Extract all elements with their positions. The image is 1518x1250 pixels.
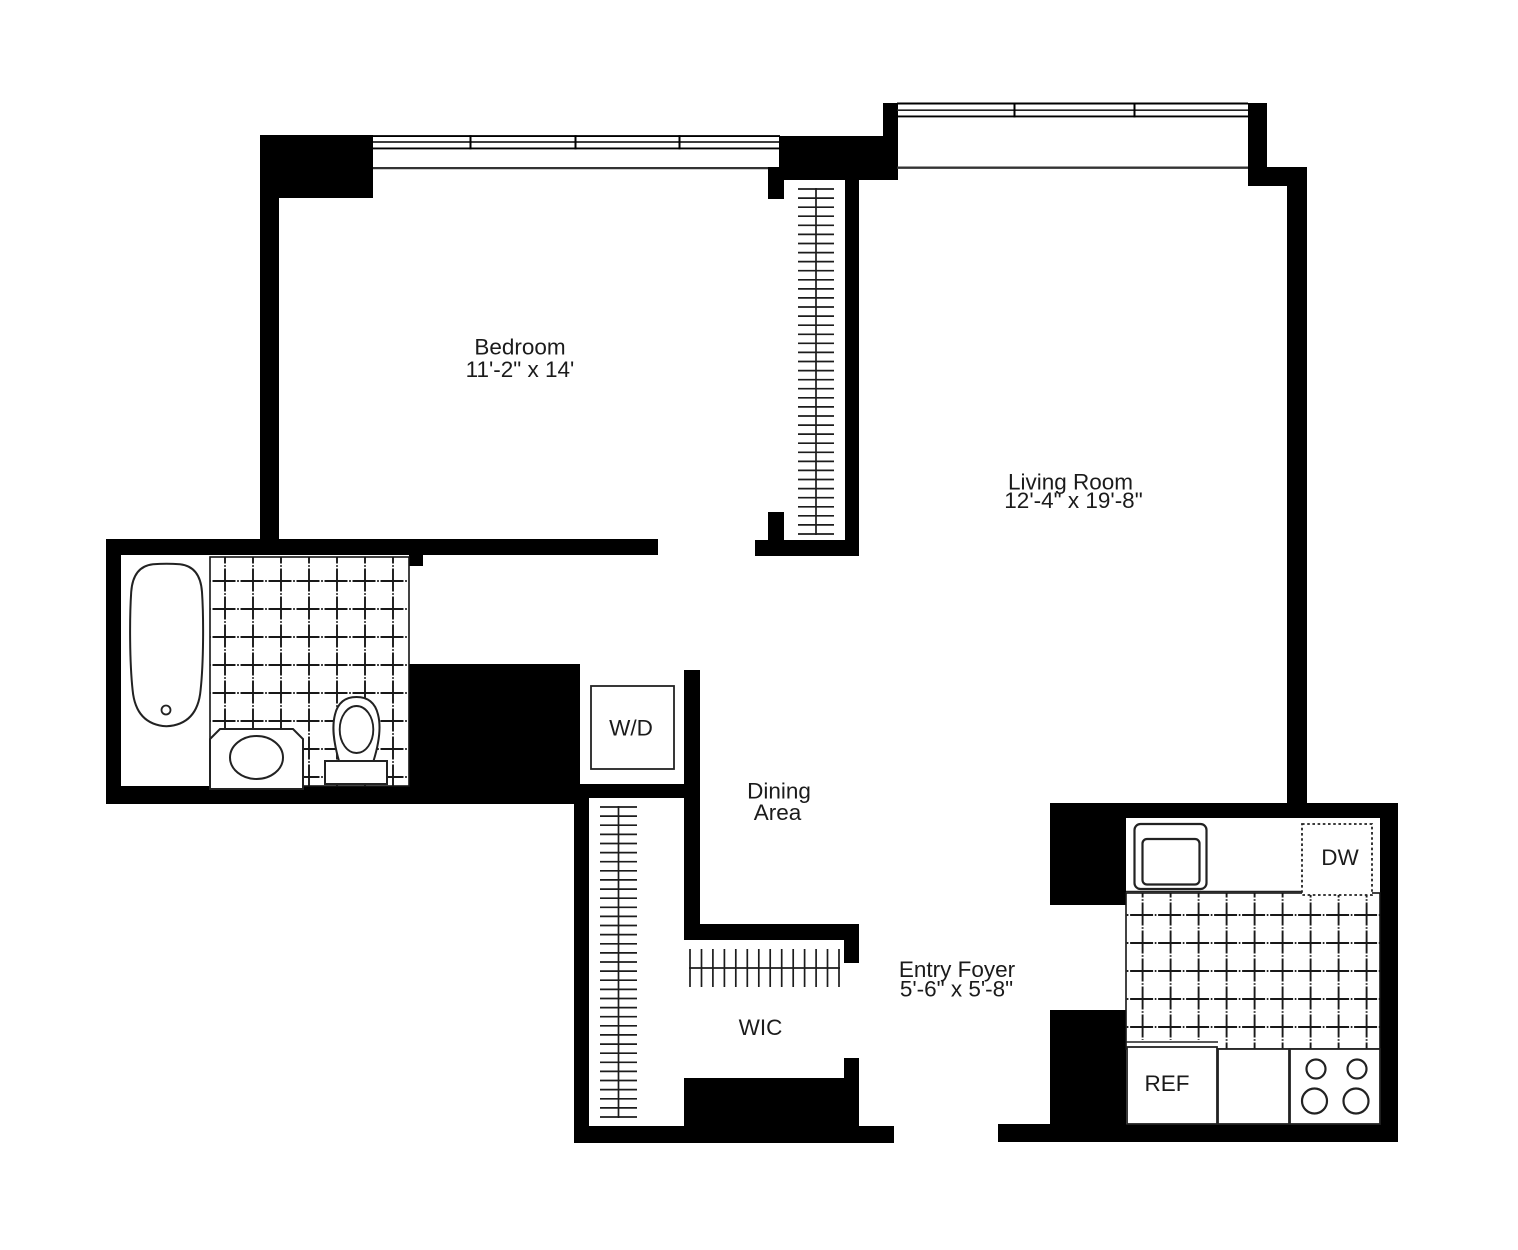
svg-text:Bedroom: Bedroom <box>474 335 565 360</box>
svg-text:WIC: WIC <box>739 1015 783 1040</box>
svg-text:REF: REF <box>1145 1071 1190 1096</box>
svg-text:W/D: W/D <box>609 716 653 741</box>
svg-text:Area: Area <box>754 800 802 825</box>
svg-text:5'-6" x 5'-8": 5'-6" x 5'-8" <box>900 977 1013 1002</box>
svg-text:12'-4" x 19'-8": 12'-4" x 19'-8" <box>1004 488 1142 513</box>
svg-text:DW: DW <box>1321 845 1359 870</box>
svg-text:11'-2" x 14': 11'-2" x 14' <box>466 357 575 382</box>
